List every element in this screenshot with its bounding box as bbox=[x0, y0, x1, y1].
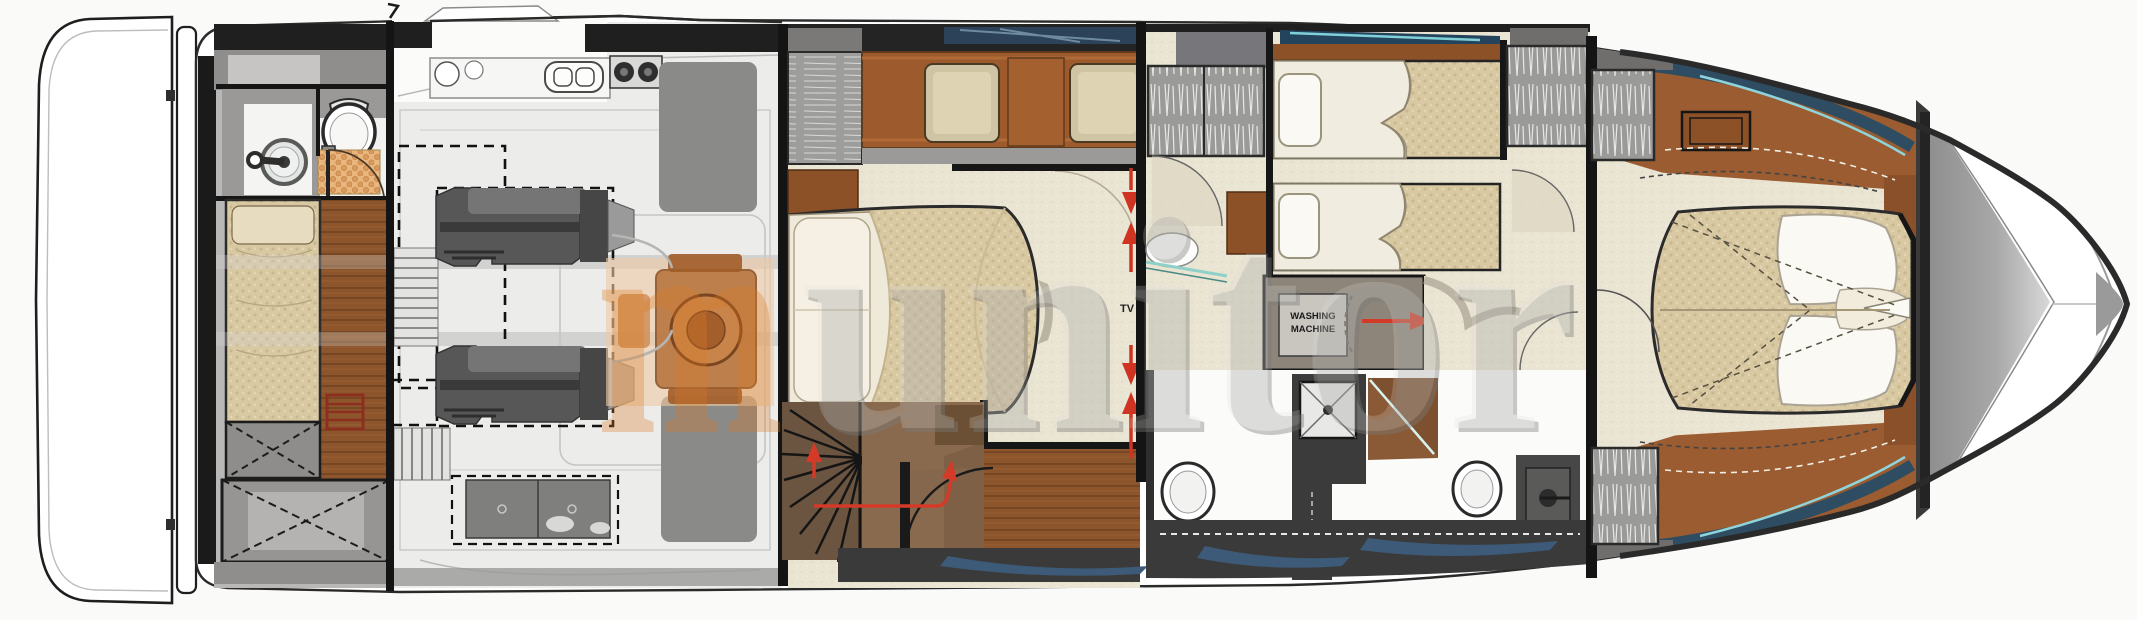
svg-text:m: m bbox=[596, 157, 784, 500]
svg-text:unitor: unitor bbox=[800, 153, 1576, 496]
